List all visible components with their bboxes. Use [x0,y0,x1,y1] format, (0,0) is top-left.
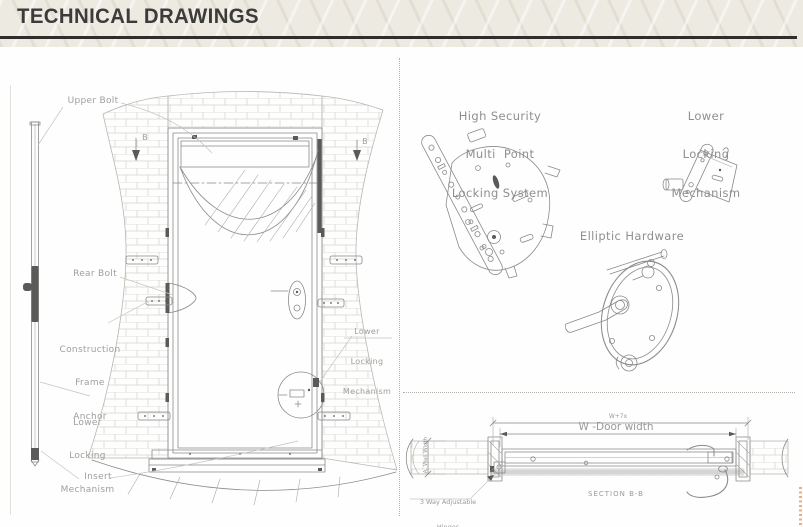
label-lower-locking-mechanism: Lower Locking Mechanism [35,395,140,519]
title-lower-locking: Lower Locking Mechanism [650,84,762,226]
label-adjustable-hinges: 3 Way Adjustable Hinges [404,481,492,527]
section-marker-b-left: B [139,133,151,143]
label-insert: Insert [72,472,124,483]
dimension-wall-width: A. Wall Width [423,425,429,485]
dimension-overall-width: W+7x [588,413,648,420]
elliptic-hardware-drawing [565,250,691,375]
orange-dotted-accent [799,487,802,527]
section-marker-b-right: B [359,137,371,147]
technical-drawings-page: TECHNICAL DRAWINGS [0,0,803,527]
dimension-door-width: W -Door width [556,421,676,433]
label-rear-bolt: Rear Bolt [64,269,126,280]
horizontal-dotted-divider [403,392,795,393]
label-door-lower-locking: Lower Locking Mechanism [338,307,396,417]
label-upper-bolt: Upper Bolt [58,96,128,107]
section-bb-title: SECTION B-B [566,490,666,498]
title-multi-point-locking: High Security Multi Point Locking System [438,84,562,226]
title-elliptic-hardware: Elliptic Hardware [568,230,696,243]
vertical-dotted-divider [399,58,400,516]
